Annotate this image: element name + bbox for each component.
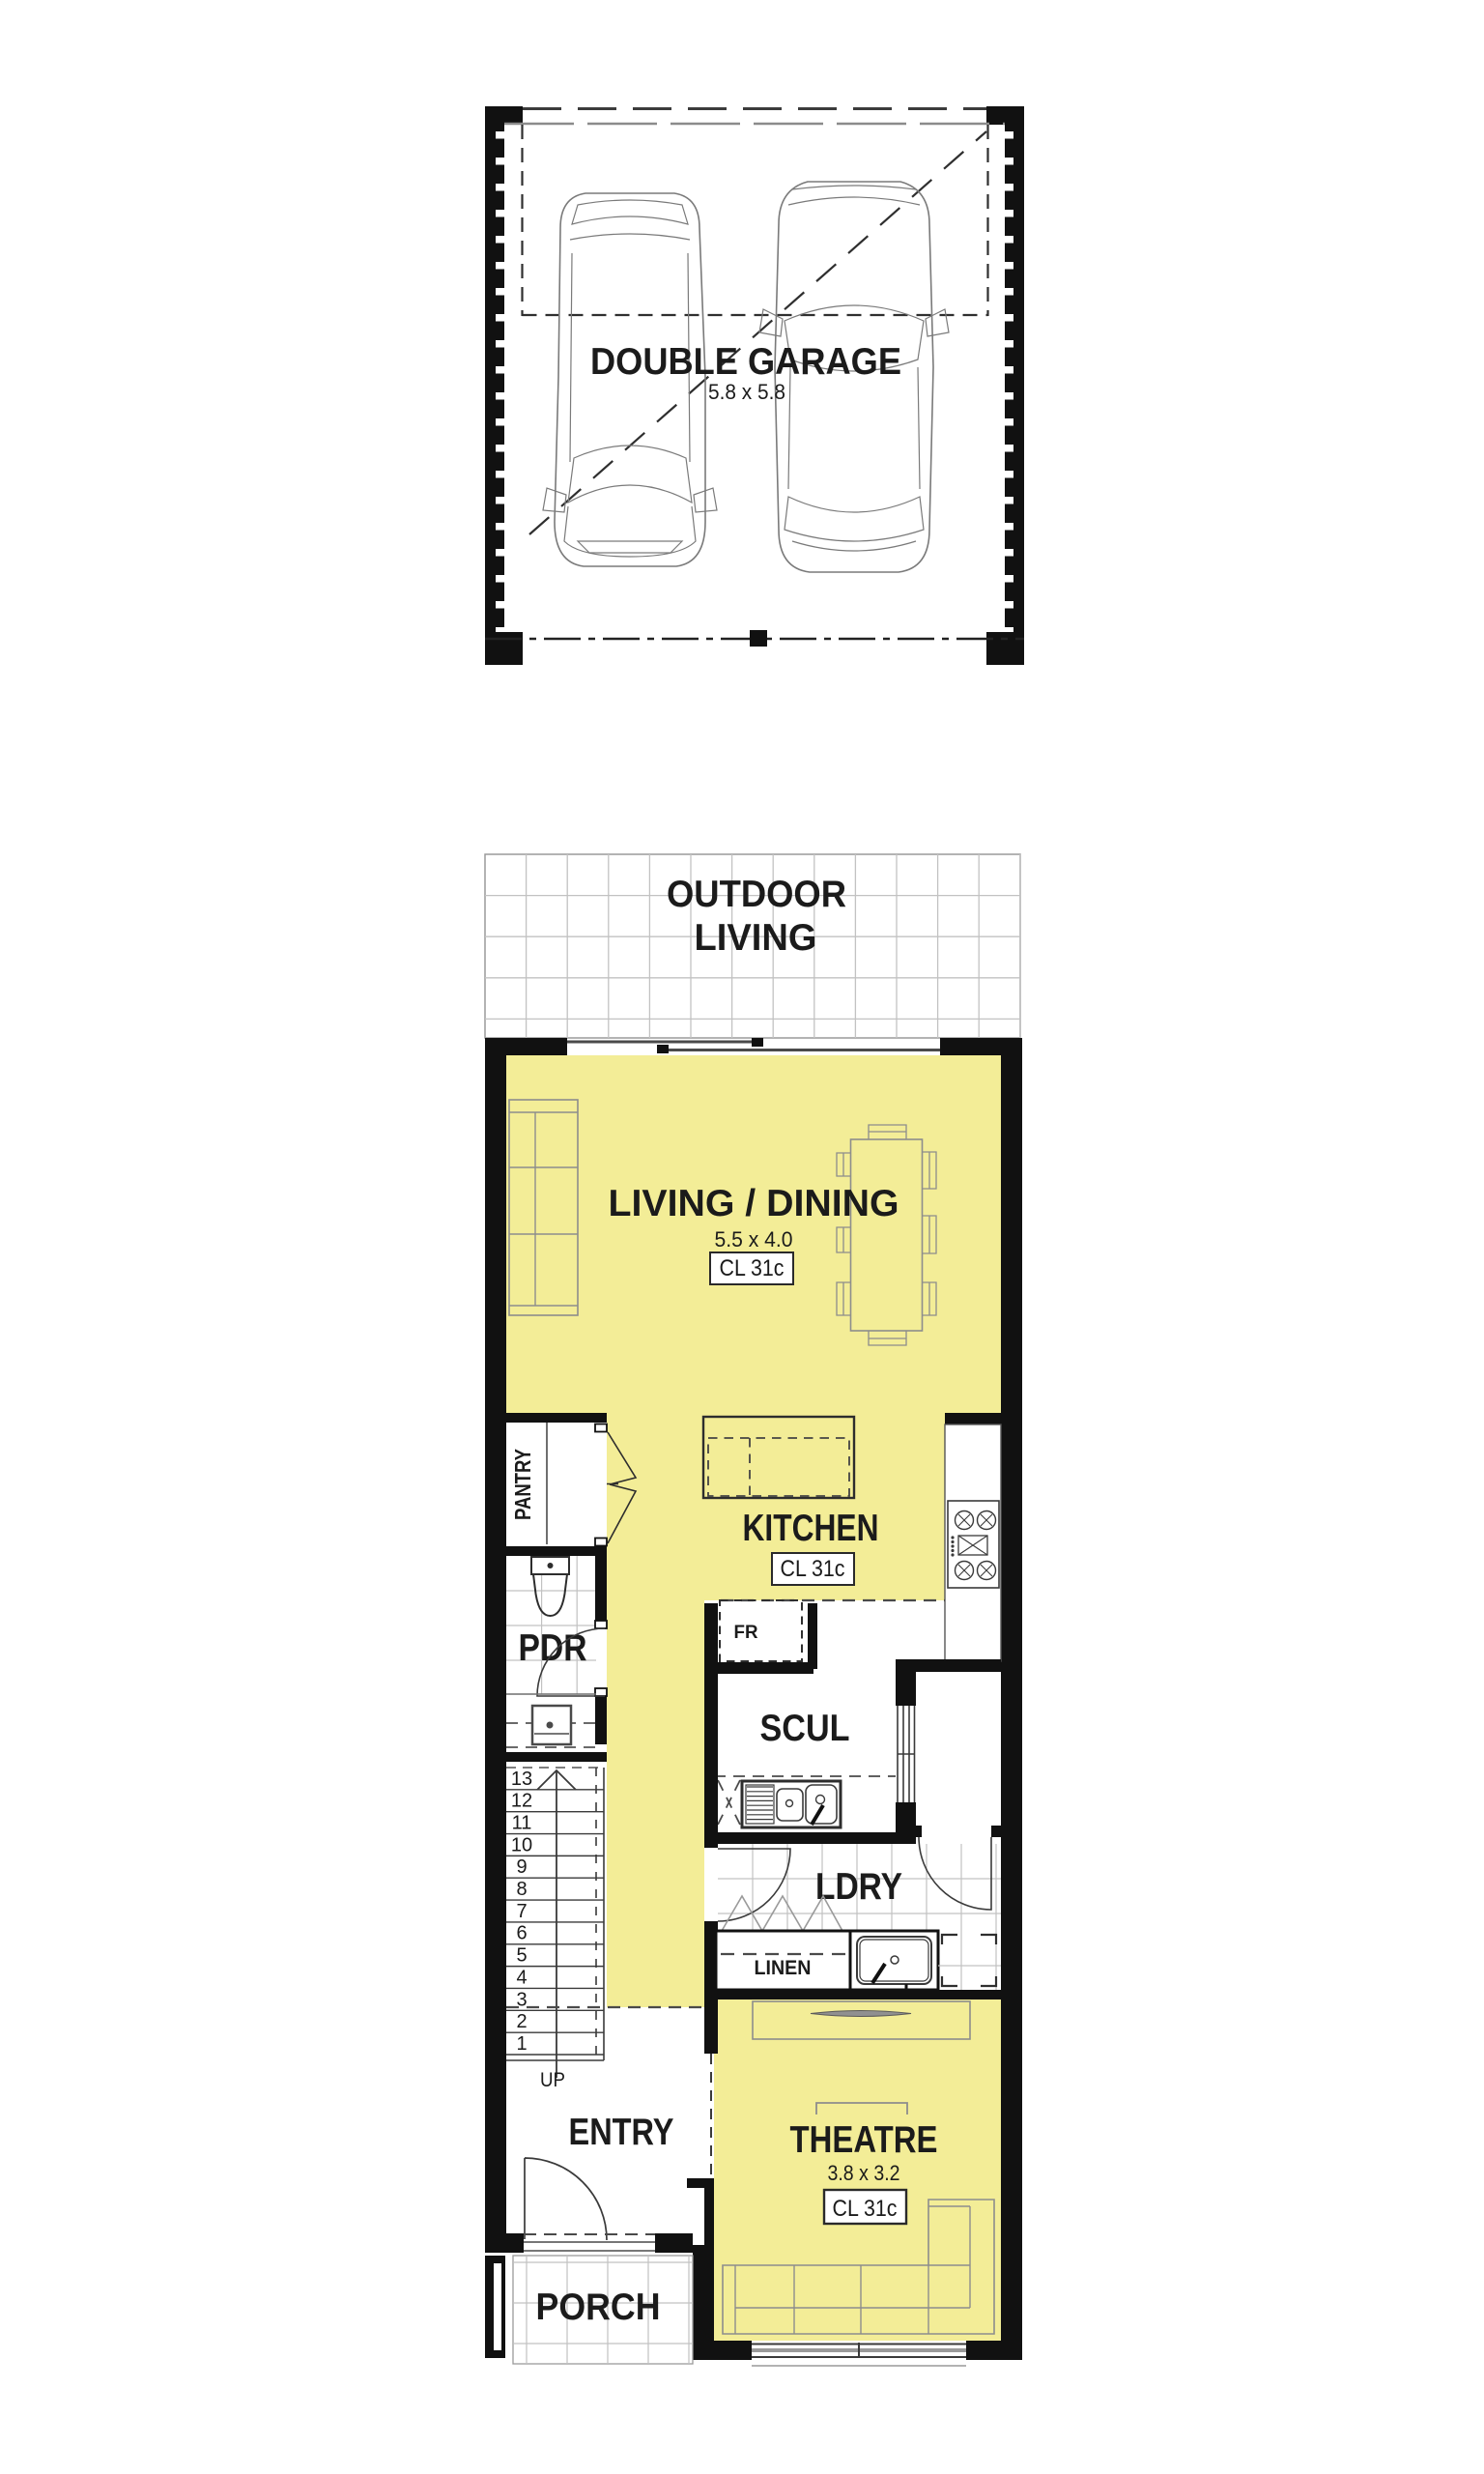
svg-text:CL 31c: CL 31c xyxy=(781,1556,845,1582)
svg-text:OUTDOOR: OUTDOOR xyxy=(667,874,846,915)
svg-text:LIVING / DINING: LIVING / DINING xyxy=(609,1183,899,1224)
svg-text:13: 13 xyxy=(511,1769,532,1790)
svg-text:SCUL: SCUL xyxy=(760,1708,850,1749)
svg-text:11: 11 xyxy=(512,1813,532,1834)
svg-text:LDRY: LDRY xyxy=(815,1866,902,1908)
svg-text:CL 31c: CL 31c xyxy=(833,2196,898,2222)
svg-text:PORCH: PORCH xyxy=(536,2287,661,2328)
svg-text:7: 7 xyxy=(516,1901,527,1922)
svg-text:10: 10 xyxy=(511,1834,532,1855)
svg-text:LIVING: LIVING xyxy=(695,917,817,959)
svg-text:6: 6 xyxy=(516,1923,527,1944)
svg-text:5.5 x 4.0: 5.5 x 4.0 xyxy=(715,1227,793,1251)
svg-text:DOUBLE GARAGE: DOUBLE GARAGE xyxy=(590,341,901,383)
svg-text:KITCHEN: KITCHEN xyxy=(743,1508,879,1549)
svg-text:2: 2 xyxy=(516,2011,527,2032)
svg-text:1: 1 xyxy=(516,2033,527,2055)
svg-text:5.8 x 5.8: 5.8 x 5.8 xyxy=(708,380,785,404)
svg-text:5: 5 xyxy=(516,1945,527,1967)
svg-text:12: 12 xyxy=(511,1791,532,1812)
svg-text:CL 31c: CL 31c xyxy=(720,1255,785,1281)
svg-text:4: 4 xyxy=(516,1967,527,1988)
svg-text:8: 8 xyxy=(516,1879,527,1900)
svg-text:9: 9 xyxy=(516,1856,527,1878)
svg-text:3.8 x 3.2: 3.8 x 3.2 xyxy=(828,2161,900,2185)
svg-text:ENTRY: ENTRY xyxy=(569,2112,674,2153)
svg-text:PANTRY: PANTRY xyxy=(510,1449,535,1520)
svg-text:UP: UP xyxy=(540,2069,565,2091)
svg-text:FR: FR xyxy=(734,1623,758,1643)
svg-text:LINEN: LINEN xyxy=(755,1957,812,1979)
svg-text:THEATRE: THEATRE xyxy=(790,2119,938,2161)
